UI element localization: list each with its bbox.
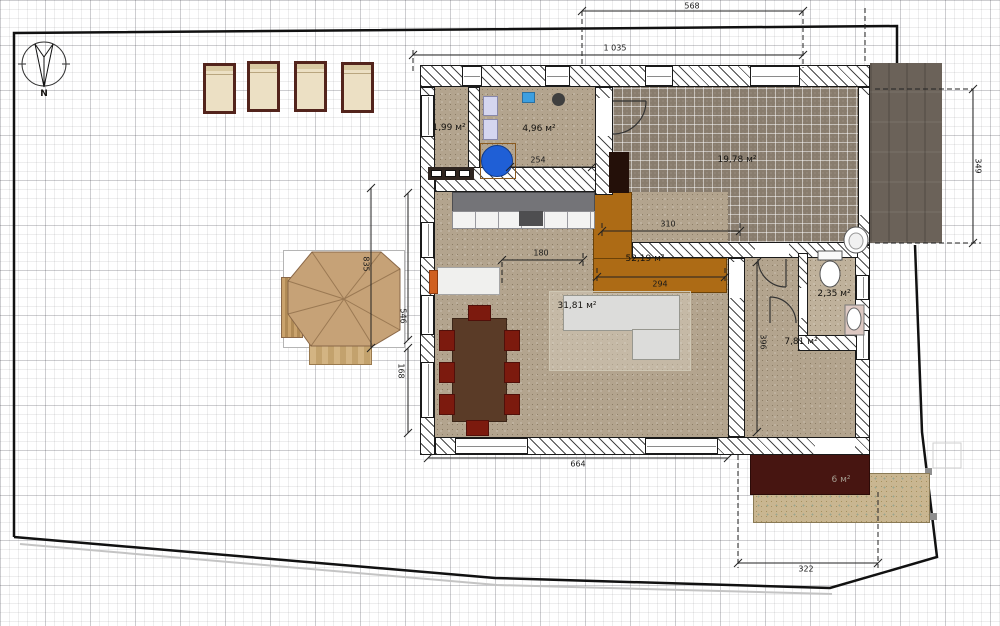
hall-door-arc-2 [770, 297, 796, 323]
annotation-layer [0, 0, 1000, 626]
room-label-laundry: 4,96 м² [522, 124, 555, 134]
room-label-wc: 2,35 м² [817, 289, 850, 299]
dim-label-835: 835 [362, 256, 371, 271]
hall-door-arc-1 [758, 259, 786, 287]
dim-label-168: 168 [397, 363, 406, 378]
dim-label-546: 546 [399, 308, 408, 323]
terrace-door-arc [613, 101, 646, 134]
dim-label-396: 396 [759, 334, 768, 349]
room-label-total: 52,19 м² [625, 254, 664, 264]
dim-line-254 [506, 163, 596, 171]
room-label-hall: 7,81 м² [784, 337, 817, 347]
dim-label-664: 664 [570, 460, 585, 469]
dim-label-294: 294 [652, 280, 667, 289]
compass-rose [18, 42, 70, 87]
dim-label-254: 254 [530, 156, 545, 165]
compass-north-label: N [40, 89, 48, 99]
dim-label-180: 180 [533, 249, 548, 258]
room-label-porch: 6 м² [832, 475, 851, 485]
dim-label-310: 310 [660, 220, 675, 229]
dim-label-568: 568 [684, 2, 699, 11]
room-label-storage: 1,99 м² [432, 123, 465, 133]
dim-label-349: 349 [974, 158, 983, 173]
dim-extension-lines [413, 8, 981, 568]
room-label-terrace: 19,78 м² [717, 155, 756, 165]
floor-plan-canvas: 1,99 м² 4,96 м² 19,78 м² 52,19 м² 31,81 … [0, 0, 1000, 626]
dim-line-168 [404, 344, 412, 437]
dim-label-1035: 1 035 [604, 44, 627, 53]
dim-label-322: 322 [798, 565, 813, 574]
room-label-living: 31,81 м² [557, 301, 596, 311]
